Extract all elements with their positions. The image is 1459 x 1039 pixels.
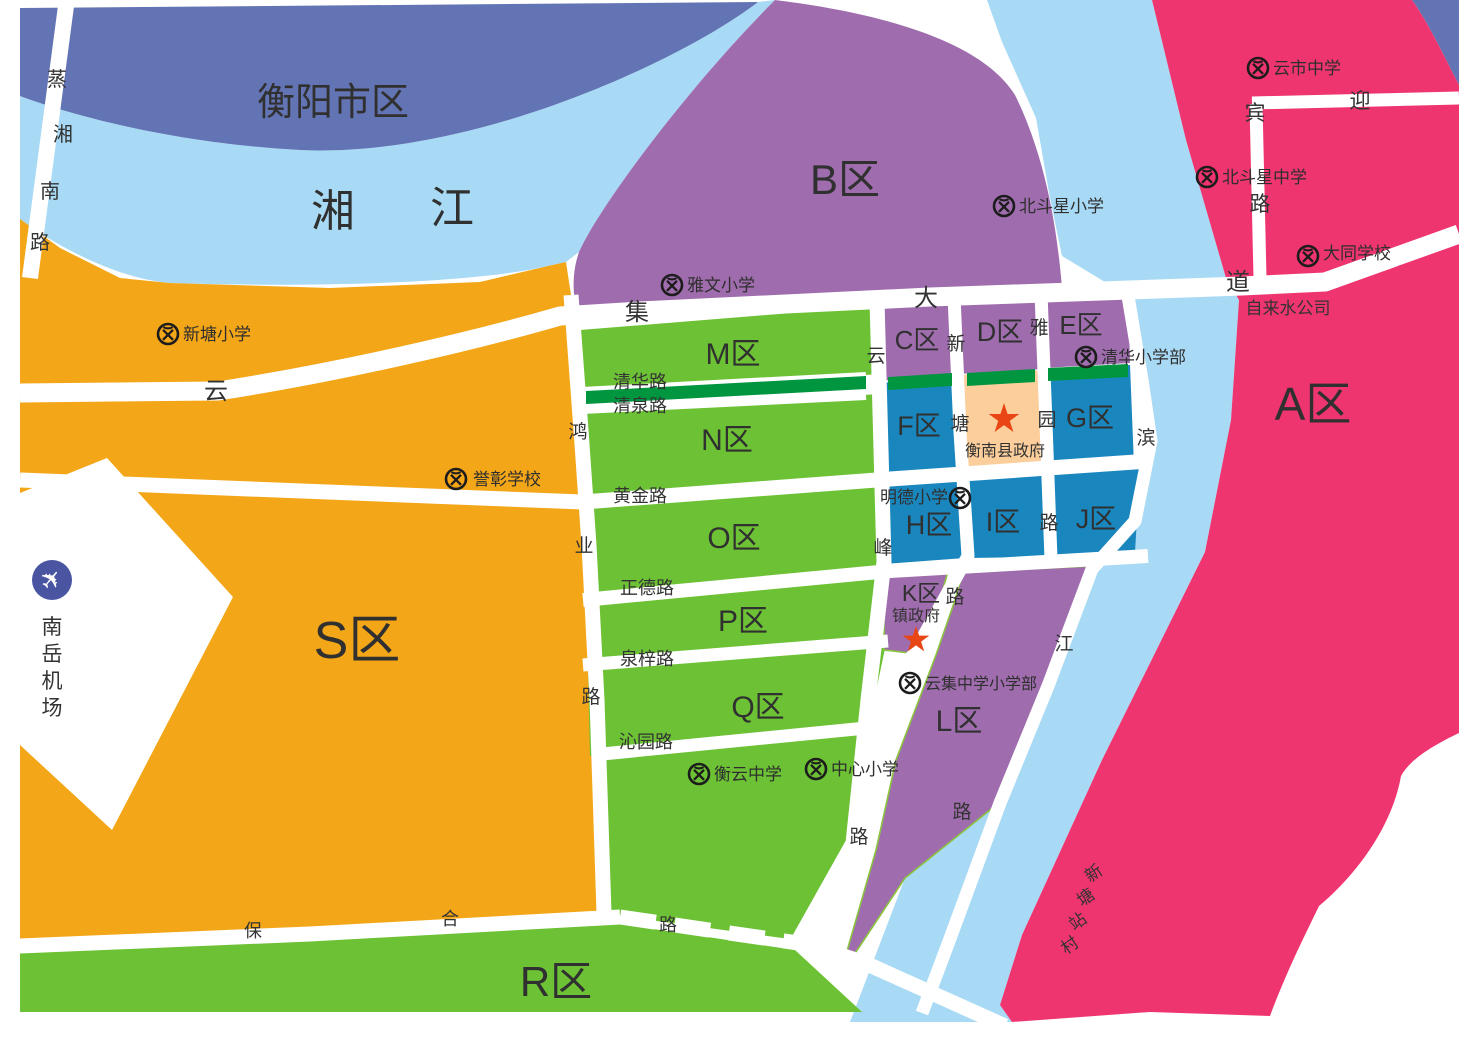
- zone-n-label: N区: [701, 424, 753, 457]
- map-canvas: ✈ 南 岳 机 场 衡阳市区 湘 江 B区 A区 S区 R区 M区 N区 O区 …: [0, 0, 1459, 1039]
- svg-text:峰: 峰: [873, 537, 892, 559]
- road-quanzi-label: 泉梓路: [620, 649, 674, 669]
- svg-text:路: 路: [1039, 512, 1058, 534]
- svg-text:路: 路: [581, 686, 600, 708]
- school-icon: [1298, 246, 1318, 266]
- zone-c-label: C区: [895, 325, 940, 355]
- zone-r-label: R区: [520, 958, 592, 1005]
- zone-k-label: K区: [902, 580, 940, 606]
- school-hengyun-middle: 衡云中学: [689, 764, 782, 784]
- water-company-label: 自来水公司: [1246, 299, 1331, 318]
- svg-text:鸿: 鸿: [568, 421, 587, 443]
- road-qingquan-label: 清泉路: [613, 396, 667, 416]
- svg-text:雅文小学: 雅文小学: [687, 276, 755, 295]
- school-icon: [662, 275, 682, 295]
- label-hengyang-city: 衡阳市区: [257, 82, 409, 124]
- county-government-label: 衡南县政府: [965, 442, 1045, 460]
- school-xintang-primary: 新塘小学: [158, 324, 251, 344]
- svg-text:大同学校: 大同学校: [1323, 244, 1391, 263]
- school-icon: [806, 759, 826, 779]
- label-xiangjiang-char2: 江: [430, 184, 474, 233]
- label-xiangjiang-char1: 湘: [311, 187, 355, 236]
- school-icon: [689, 764, 709, 784]
- school-icon: [446, 469, 466, 489]
- svg-text:道: 道: [1226, 269, 1250, 296]
- zone-e-label: E区: [1059, 310, 1102, 340]
- svg-text:路: 路: [952, 801, 971, 823]
- school-yuzhang: 誉彰学校: [446, 469, 541, 489]
- zone-h-label: H区: [906, 510, 953, 540]
- svg-text:园: 园: [1037, 410, 1056, 431]
- zone-d-label: D区: [977, 317, 1024, 347]
- school-datong: 大同学校: [1298, 244, 1391, 266]
- svg-text:北斗星小学: 北斗星小学: [1019, 197, 1104, 216]
- school-icon: [158, 324, 178, 344]
- svg-text:明德小学: 明德小学: [880, 488, 948, 507]
- svg-text:清华小学部: 清华小学部: [1101, 348, 1186, 367]
- zone-o-label: O区: [707, 522, 760, 555]
- svg-text:场: 场: [42, 697, 63, 720]
- school-icon: [900, 673, 920, 693]
- svg-text:衡云中学: 衡云中学: [714, 765, 782, 784]
- school-mingde-primary: 明德小学: [880, 488, 970, 508]
- road-qinghua-label: 清华路: [613, 372, 667, 392]
- zone-s-label: S区: [314, 612, 401, 670]
- school-yawen-primary: 雅文小学: [662, 275, 755, 295]
- svg-text:宾: 宾: [1245, 102, 1266, 125]
- svg-text:新塘小学: 新塘小学: [183, 325, 251, 344]
- svg-text:新: 新: [946, 333, 965, 355]
- svg-text:北斗星中学: 北斗星中学: [1222, 168, 1307, 187]
- svg-text:南: 南: [42, 616, 63, 639]
- svg-text:迎: 迎: [1350, 90, 1371, 113]
- svg-text:塘: 塘: [950, 413, 969, 435]
- school-icon: [994, 196, 1014, 216]
- zone-m-label: M区: [706, 338, 761, 371]
- svg-text:中心小学: 中心小学: [831, 760, 899, 779]
- svg-text:机: 机: [42, 670, 63, 693]
- school-icon: [950, 488, 970, 508]
- svg-text:湘: 湘: [53, 123, 73, 146]
- zone-f-label: F区: [897, 411, 941, 441]
- svg-text:誉彰学校: 誉彰学校: [473, 470, 541, 489]
- town-government-label: 镇政府: [892, 607, 940, 625]
- zone-a-label: A区: [1275, 378, 1352, 430]
- svg-text:路: 路: [849, 826, 868, 848]
- svg-text:云: 云: [866, 346, 885, 367]
- svg-text:路: 路: [945, 586, 964, 608]
- road-qinyuan-label: 沁园路: [619, 732, 673, 752]
- svg-text:路: 路: [659, 915, 677, 935]
- zone-l-label: L区: [936, 705, 983, 738]
- svg-text:大: 大: [914, 285, 938, 312]
- svg-text:江: 江: [1054, 633, 1073, 655]
- road-zhengde-label: 正德路: [620, 578, 674, 598]
- svg-text:南: 南: [40, 180, 60, 203]
- svg-text:路: 路: [1250, 193, 1271, 216]
- school-icon: [1248, 58, 1268, 78]
- svg-text:业: 业: [574, 535, 593, 557]
- zone-j-label: J区: [1076, 504, 1117, 534]
- svg-text:雅: 雅: [1029, 317, 1048, 339]
- zone-p-label: P区: [718, 605, 768, 638]
- svg-text:云市中学: 云市中学: [1273, 59, 1341, 78]
- svg-text:保: 保: [244, 921, 262, 941]
- svg-text:蒸: 蒸: [47, 68, 67, 91]
- school-icon: [1076, 347, 1096, 367]
- road-yingbin-vertical: [1256, 104, 1260, 278]
- svg-text:集: 集: [625, 299, 649, 326]
- svg-text:路: 路: [30, 231, 50, 254]
- road-huangjin-label: 黄金路: [613, 486, 667, 506]
- zone-q-label: Q区: [731, 691, 784, 724]
- svg-text:滨: 滨: [1136, 427, 1155, 449]
- school-qinghua-primary: 清华小学部: [1076, 347, 1186, 367]
- svg-text:云: 云: [204, 378, 228, 405]
- svg-text:云集中学小学部: 云集中学小学部: [925, 675, 1037, 693]
- school-yunshi-middle: 云市中学: [1248, 58, 1341, 78]
- school-zhongxin-primary: 中心小学: [806, 759, 899, 779]
- zone-b-label: B区: [810, 156, 880, 203]
- svg-text:岳: 岳: [42, 643, 63, 666]
- zone-g-label: G区: [1066, 403, 1114, 433]
- svg-text:合: 合: [441, 909, 459, 929]
- school-icon: [1197, 167, 1217, 187]
- zone-i-label: I区: [986, 507, 1021, 537]
- school-beidouxing-primary: 北斗星小学: [994, 196, 1104, 216]
- school-beidouxing-middle: 北斗星中学: [1197, 167, 1307, 187]
